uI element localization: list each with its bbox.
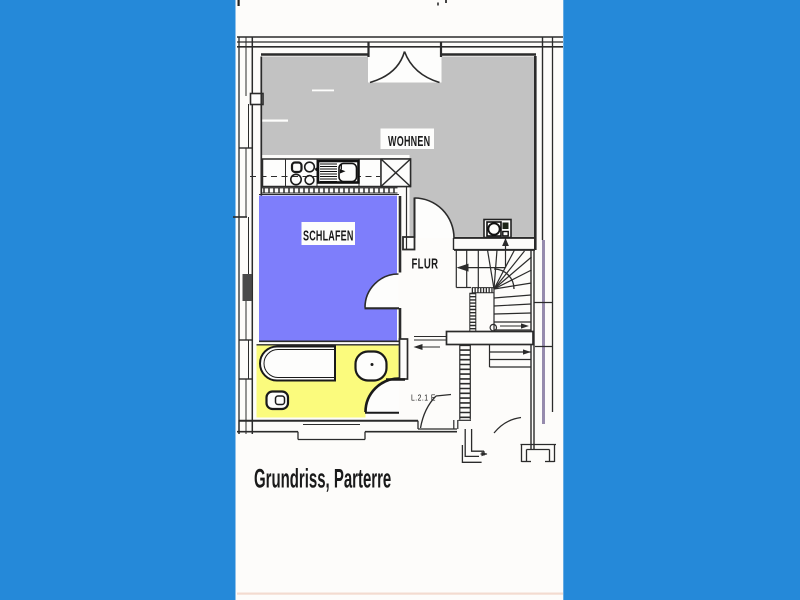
svg-text:Grundriss, Parterre: Grundriss, Parterre [254, 464, 391, 494]
svg-text:SCHLAFEN: SCHLAFEN [303, 227, 354, 244]
svg-text:FLUR: FLUR [412, 256, 439, 273]
svg-text:WOHNEN: WOHNEN [388, 133, 430, 150]
